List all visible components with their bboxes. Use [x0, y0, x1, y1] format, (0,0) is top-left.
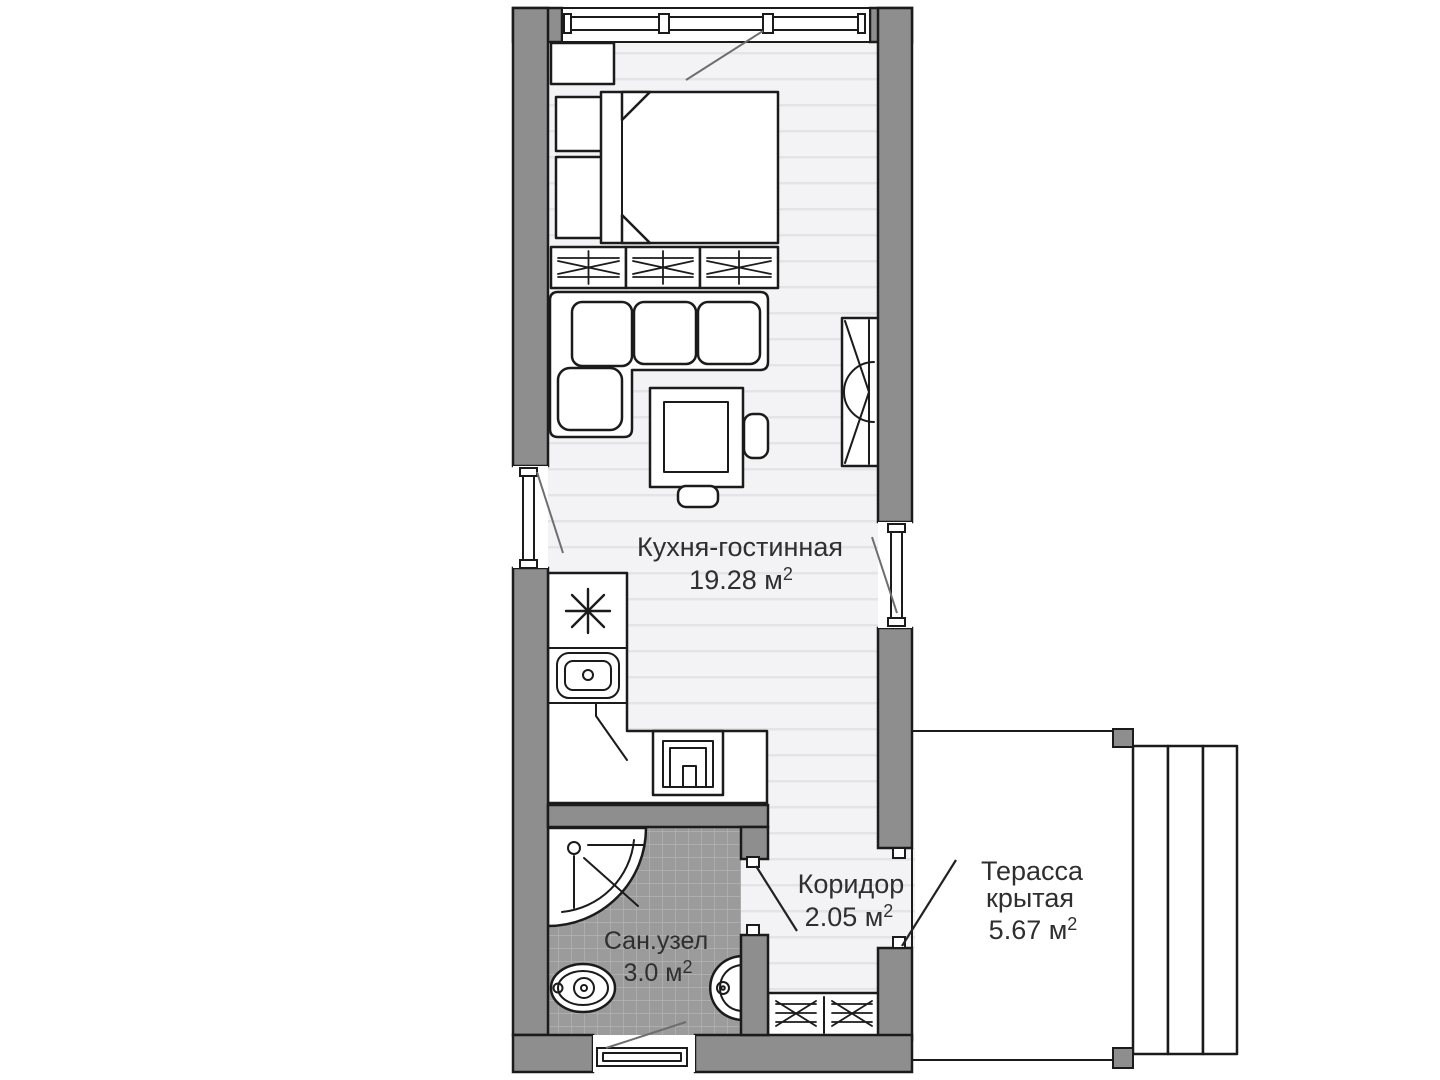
floor-plan-page: Кухня-гостинная 19.28 м2 Коридор 2.05 м2… — [0, 0, 1440, 1080]
corridor-closet — [768, 993, 880, 1037]
shelf-cabinet — [551, 43, 614, 84]
dining-table — [650, 388, 743, 487]
nightstand-top — [556, 97, 602, 151]
floor-plan: Кухня-гостинная 19.28 м2 Коридор 2.05 м2… — [0, 0, 1440, 1080]
tv-cabinet — [842, 318, 879, 466]
terrace-posts — [1113, 729, 1133, 1068]
nightstand-bottom — [556, 157, 602, 238]
room-area-kitchen-living: 19.28 м2 — [689, 564, 793, 595]
svg-text:Сан.узел: Сан.узел — [604, 927, 708, 955]
svg-text:Терасса: Терасса — [981, 856, 1084, 886]
wardrobe — [551, 247, 778, 288]
svg-text:крытая: крытая — [986, 883, 1074, 913]
room-area-corridor: 2.05 м2 — [805, 901, 894, 932]
room-area-terrace: 5.67 м2 — [989, 914, 1078, 945]
toilet — [551, 964, 615, 1012]
terrace-steps — [1133, 746, 1237, 1054]
stove-icon — [566, 589, 610, 633]
chair-bottom — [678, 486, 718, 507]
bed — [601, 92, 778, 243]
window-right — [872, 522, 912, 628]
svg-text:Кухня-гостинная: Кухня-гостинная — [637, 532, 843, 562]
chair-right — [744, 414, 768, 458]
room-label-terrace: Терасса крытая 5.67 м2 — [981, 856, 1084, 945]
room-area-bathroom: 3.0 м2 — [624, 957, 693, 987]
svg-text:Коридор: Коридор — [798, 869, 905, 899]
